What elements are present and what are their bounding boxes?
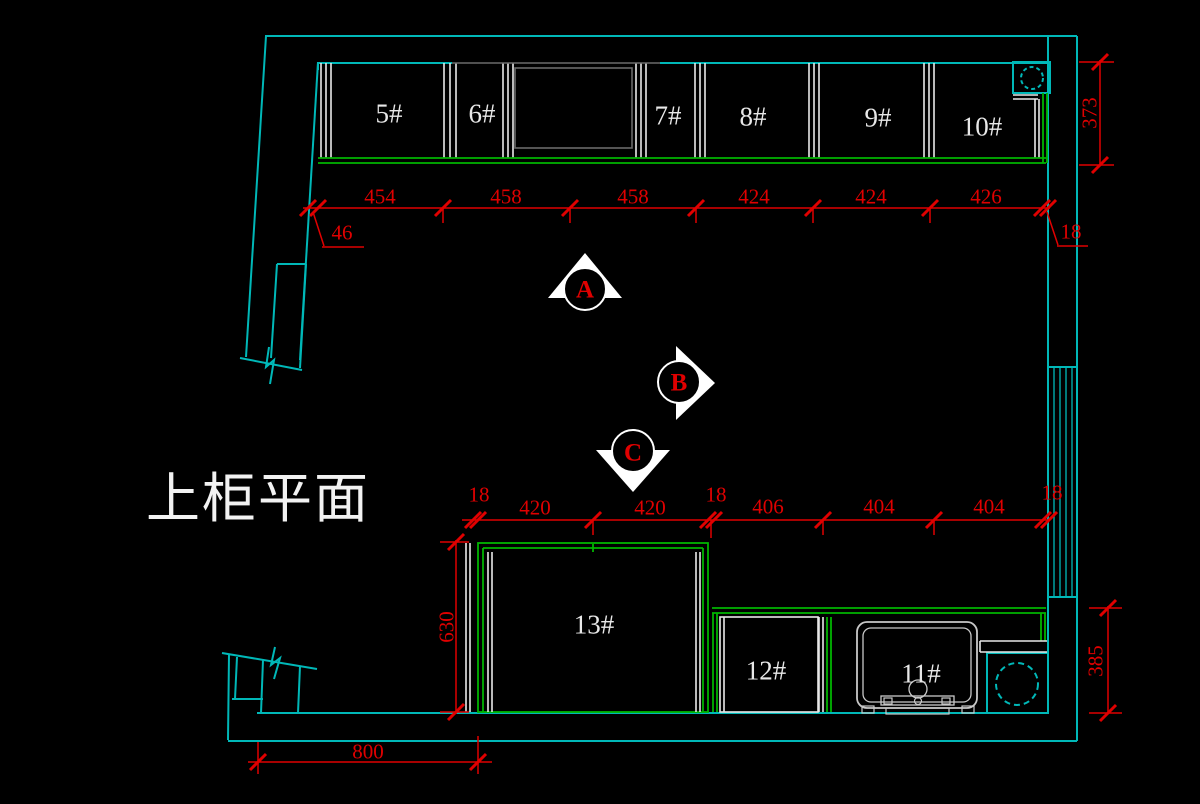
top-run-front [318, 158, 1046, 163]
dim-top-458b: 458 [617, 187, 649, 208]
cabinet-label-8: 8# [740, 104, 767, 131]
bottom-dim-drops [593, 520, 934, 538]
drawing-title: 上柜平面 [146, 472, 370, 526]
dim-top-454: 454 [364, 187, 396, 208]
dim-46: 46 [332, 223, 353, 244]
cad-linework [0, 0, 1200, 804]
dim-bottom-420a: 420 [519, 498, 551, 519]
flue-circle-top-right [1021, 67, 1043, 89]
dim-bottom-18a: 18 [469, 485, 490, 506]
dim-800: 800 [352, 742, 384, 763]
bottom-run-left-end [713, 613, 717, 712]
divider-12-11-green [827, 617, 831, 712]
cabinet-13-ext-left [466, 543, 470, 712]
dim-bottom-18c: 18 [1042, 483, 1063, 504]
dim-top-424a: 424 [738, 187, 770, 208]
cabinet-label-7: 7# [655, 103, 682, 130]
wall-lines [222, 36, 1077, 741]
cabinet-label-9: 9# [865, 105, 892, 132]
cabinet-label-10: 10# [962, 114, 1003, 141]
dim-bottom-406: 406 [752, 497, 784, 518]
cabinet-label-5: 5# [376, 101, 403, 128]
top-run-right-end [1043, 93, 1047, 163]
dim-top-458a: 458 [490, 187, 522, 208]
dim-373: 373 [1080, 97, 1101, 129]
view-marker-c-letter: C [624, 441, 642, 466]
duct-circle-bottom-right [996, 663, 1038, 705]
dim-bottom-404a: 404 [863, 497, 895, 518]
left-wall-outer [246, 36, 266, 357]
left-wall-column [271, 264, 306, 368]
dim-top-426: 426 [970, 187, 1002, 208]
bottom-run-right-end [1041, 613, 1045, 641]
view-marker-a-letter: A [576, 278, 594, 303]
dim-18-top-right: 18 [1061, 222, 1082, 243]
view-marker-b-letter: B [671, 371, 688, 396]
cabinet-label-13: 13# [574, 612, 615, 639]
dim-630: 630 [437, 611, 458, 643]
cabinet-label-12: 12# [746, 658, 787, 685]
dim-bottom-18b: 18 [706, 485, 727, 506]
cad-drawing-canvas[interactable]: 上柜平面 5# 6# 7# 8# 9# 10# 13# 12# 11# 454 … [0, 0, 1200, 804]
cabinet-label-6: 6# [469, 101, 496, 128]
dim-top-424b: 424 [855, 187, 887, 208]
counter-edge-right [980, 641, 1047, 652]
bottom-left-wall [222, 653, 317, 740]
top-dim-drops [443, 208, 930, 223]
dim-bottom-420b: 420 [634, 498, 666, 519]
dim-385: 385 [1086, 645, 1107, 677]
dim-bottom-404b: 404 [973, 497, 1005, 518]
dimension-lines [248, 60, 1122, 774]
bottom-run-front [712, 608, 1046, 613]
cabinet-label-11: 11# [901, 661, 941, 688]
